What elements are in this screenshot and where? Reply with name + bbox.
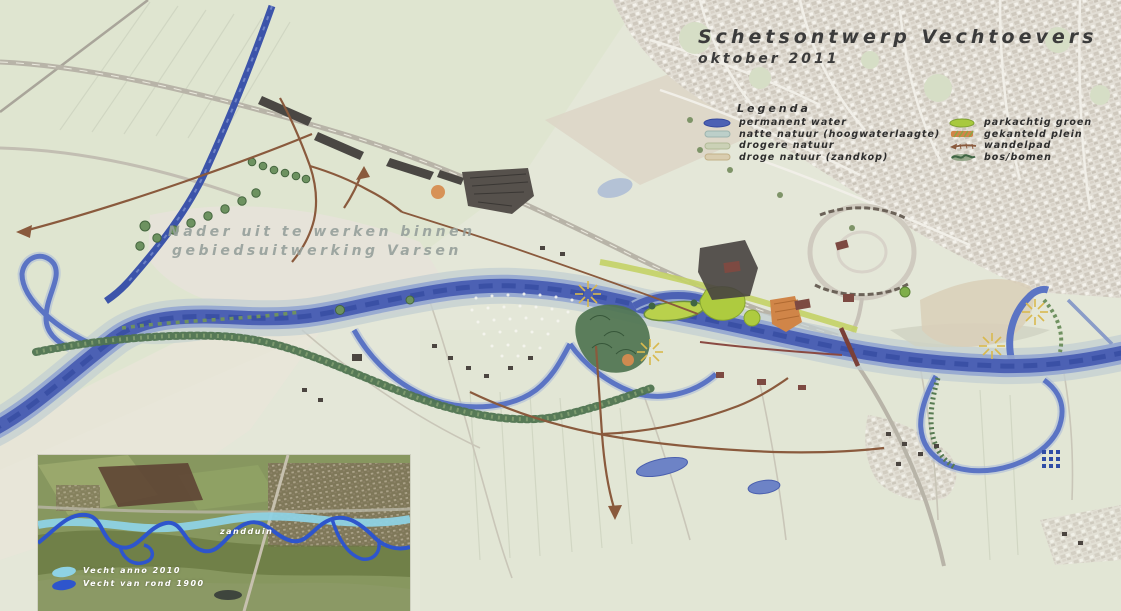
parkachtig-groen-swatch xyxy=(948,118,978,128)
legend-label: gekanteld plein xyxy=(984,130,1083,140)
wandelpad-swatch xyxy=(948,141,978,151)
bos-bomen-swatch xyxy=(948,152,978,162)
legend-label: drogere natuur xyxy=(739,141,835,151)
inset-legend-vecht-2010: Vecht anno 2010 xyxy=(83,566,181,575)
legend-item-drogere-natuur: drogere natuur xyxy=(703,140,948,152)
page-subtitle-date: oktober 2011 xyxy=(698,51,1097,67)
legend-label: permanent water xyxy=(739,118,847,128)
legend-item-natte-natuur: natte natuur (hoogwaterlaagte) xyxy=(703,129,948,141)
title-block: Schetsontwerp Vechtoevers oktober 2011 xyxy=(698,26,1097,67)
sketch-plan-canvas: Schetsontwerp Vechtoevers oktober 2011 L… xyxy=(0,0,1121,611)
legend-item-gekanteld-plein: gekanteld plein xyxy=(948,129,1092,141)
legend-label: wandelpad xyxy=(984,141,1051,151)
inset-label-zandduin: zandduin xyxy=(220,527,273,536)
legend-item-bos-bomen: bos/bomen xyxy=(948,152,1092,164)
drogere-natuur-swatch xyxy=(703,141,733,151)
inset-legend-vecht-1900: Vecht van rond 1900 xyxy=(83,579,205,588)
legend-heading: Legenda xyxy=(737,102,1092,115)
page-title: Schetsontwerp Vechtoevers xyxy=(698,26,1097,48)
gekanteld-plein-swatch xyxy=(948,129,978,139)
legend-label: parkachtig groen xyxy=(984,118,1092,128)
blue-square-grid xyxy=(1042,450,1060,468)
legend-item-wandelpad: wandelpad xyxy=(948,140,1092,152)
map-note-line1: Nader uit te werken binnen xyxy=(168,224,476,240)
legend-label: droge natuur (zandkop) xyxy=(739,153,888,163)
legend-item-parkachtig-groen: parkachtig groen xyxy=(948,117,1092,129)
legend: Legenda permanent water natte natuur (ho… xyxy=(703,102,1092,163)
droge-natuur-swatch xyxy=(703,152,733,162)
legend-item-permanent-water: permanent water xyxy=(703,117,948,129)
natte-natuur-swatch xyxy=(703,129,733,139)
legend-label: natte natuur (hoogwaterlaagte) xyxy=(739,130,940,140)
permanent-water-swatch xyxy=(703,118,733,128)
inset-historic-map: zandduin Vecht anno 2010 Vecht van rond … xyxy=(38,455,410,611)
legend-item-droge-natuur: droge natuur (zandkop) xyxy=(703,152,948,164)
legend-label: bos/bomen xyxy=(984,153,1052,163)
map-note-line2: gebiedsuitwerking Varsen xyxy=(172,243,476,259)
map-note: Nader uit te werken binnen gebiedsuitwer… xyxy=(168,224,476,259)
